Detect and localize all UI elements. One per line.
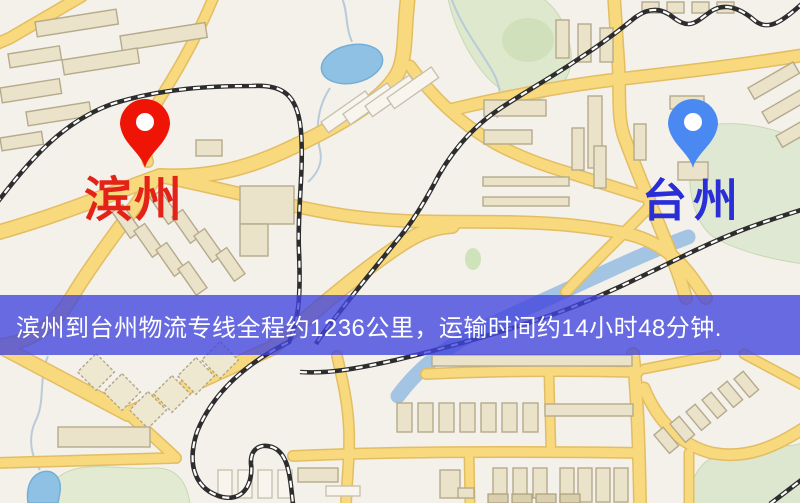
destination-pin-hole <box>684 113 702 131</box>
route-info-text: 滨州到台州物流专线全程约1236公里，运输时间约14小时48分钟. <box>16 308 722 343</box>
origin-pin-hole <box>136 113 154 131</box>
route-info-banner: 滨州到台州物流专线全程约1236公里，运输时间约14小时48分钟. <box>0 295 800 355</box>
map-background <box>0 0 800 503</box>
map-view: 滨州 台州 滨州到台州物流专线全程约1236公里，运输时间约14小时48分钟. <box>0 0 800 503</box>
